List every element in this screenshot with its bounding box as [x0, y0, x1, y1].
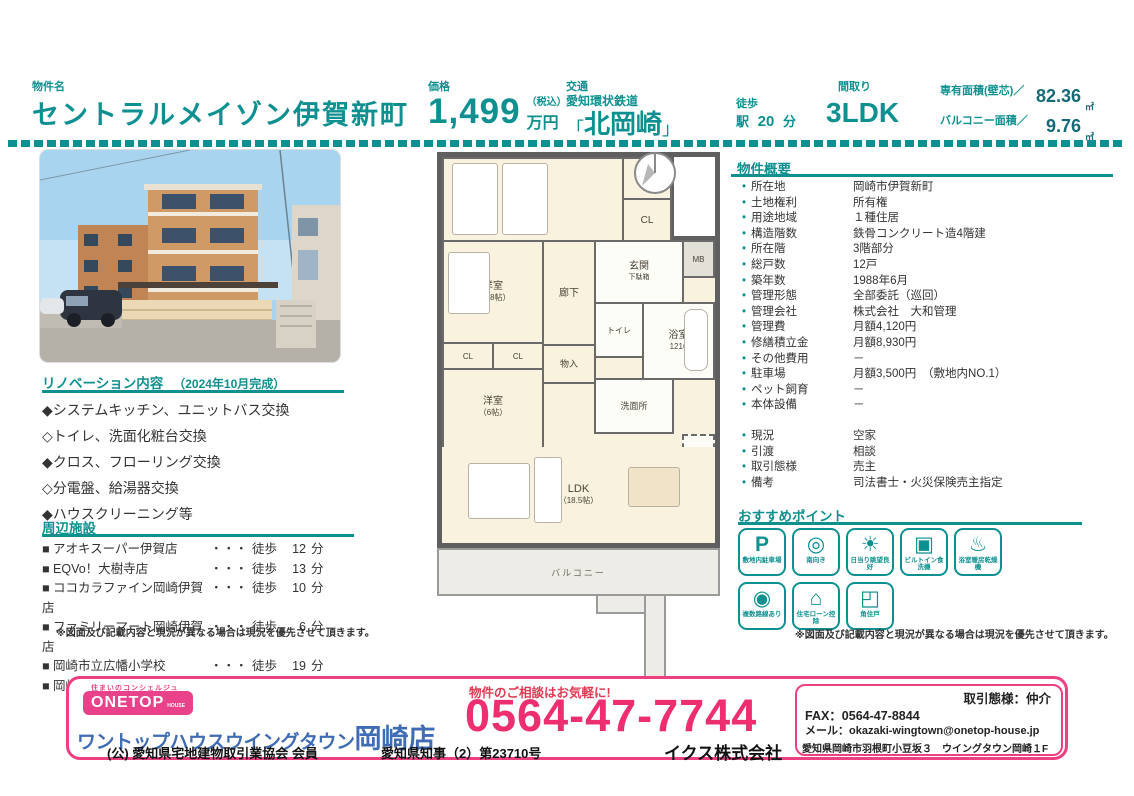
- area-value: 82.36: [1036, 86, 1081, 107]
- train-icon: ◉: [753, 587, 771, 611]
- facility-row: ■ ココカラファイン岡崎伊賀店・・・徒歩10分: [42, 579, 362, 618]
- overview-row: •その他費用－: [737, 352, 1122, 368]
- price-unit: 万円: [527, 109, 567, 133]
- badge-corner-unit: ◰角住戸: [846, 582, 894, 630]
- balcony-area-label: バルコニー面積／: [940, 112, 1028, 128]
- rug-furniture: [468, 463, 530, 519]
- overview-row: •修繕積立金月額8,930円: [737, 336, 1122, 352]
- overview-row: •所在地岡崎市伊賀新町: [737, 180, 1122, 196]
- bath-dryer-icon: ♨: [969, 533, 988, 557]
- building-photo-illustration: [40, 150, 340, 362]
- overview-rule: [731, 174, 1113, 177]
- parking-icon: P: [755, 533, 769, 557]
- facilities-rule: [42, 534, 354, 537]
- overview-row: •築年数1988年6月: [737, 274, 1122, 290]
- balcony: バルコニー: [437, 548, 720, 596]
- overview-row: •所在階3階部分: [737, 242, 1122, 258]
- badge-multiple-lines: ◉複数路線あり: [738, 582, 786, 630]
- bed-furniture: [452, 163, 498, 235]
- email-address: メール：okazaki-wingtown@onetop-house.jp: [805, 722, 1039, 738]
- dining-table-furniture: [628, 467, 680, 507]
- layout-label: 間取り: [838, 78, 871, 94]
- walk-minutes: 20: [758, 113, 775, 130]
- dishwasher-icon: ▣: [914, 533, 934, 557]
- badge-parking: P敷地内駐車場: [738, 528, 786, 576]
- compass-icon: ◎: [807, 533, 825, 557]
- compass-icon: [632, 150, 678, 196]
- entrance: 玄関下駄箱: [594, 240, 684, 304]
- overview-row: •取引態様売主: [737, 460, 1122, 476]
- badge-dishwasher: ▣ビルトイン食洗機: [900, 528, 948, 576]
- renovation-item: ◇トイレ、洗面化粧台交換: [42, 423, 362, 449]
- facility-row: ■ EQVo！大樹寺店・・・徒歩13分: [42, 560, 362, 580]
- layout-value: 3LDK: [826, 97, 899, 129]
- badge-south-facing: ◎南向き: [792, 528, 840, 576]
- overview-row: •管理費月額4,120円: [737, 320, 1122, 336]
- renovation-title: リノベーション内容: [42, 372, 163, 392]
- overview-row: •土地権利所有権: [737, 196, 1122, 212]
- toilet: トイレ: [594, 302, 644, 358]
- contact-box: 取引態様：仲介 FAX：0564-47-8844 メール：okazaki-win…: [795, 684, 1063, 756]
- corner-unit-icon: ◰: [860, 587, 880, 611]
- sun-icon: ☀: [861, 533, 880, 557]
- deal-type: 取引態様：仲介: [963, 688, 1051, 707]
- price-tax-note: （税込）: [527, 96, 567, 109]
- overview-row: •引渡相談: [737, 445, 1122, 461]
- overview-row: •現況空家: [737, 429, 1122, 445]
- station-bracket-close: 」: [662, 115, 680, 141]
- company-name: イクス株式会社: [664, 739, 782, 764]
- phone-number: 0564-47-7744: [465, 694, 757, 738]
- footer: 住まいのコンシェルジュ ONETOP HOUSE ワントップハウスウイングタウン…: [66, 676, 1068, 760]
- overview-row: •用途地域１種住居: [737, 211, 1122, 227]
- property-name: セントラルメイゾン伊賀新町: [32, 93, 409, 132]
- sofa-furniture: [534, 457, 562, 523]
- balcony-area-value: 9.76: [1046, 116, 1081, 137]
- area-label: 専有面積(壁芯)／: [940, 82, 1024, 98]
- overview-row: •構造階数鉄骨コンクリート造4階建: [737, 227, 1122, 243]
- points-disclaimer: ※図面及び記載内容と現況が異なる場合は現況を優先させて頂きます。: [795, 626, 1114, 641]
- onetop-logo: ONETOP HOUSE: [83, 691, 193, 715]
- property-photo: [40, 150, 340, 362]
- storage: 物入: [542, 344, 596, 384]
- closet: CL: [492, 342, 544, 370]
- station-bracket-open: 「: [566, 115, 584, 141]
- renovation-item: ◆システムキッチン、ユニットバス交換: [42, 397, 362, 423]
- bed-furniture: [502, 163, 548, 235]
- property-name-label: 物件名: [32, 78, 65, 94]
- washroom: 洗面所: [594, 378, 674, 434]
- hallway: 廊下: [542, 240, 596, 346]
- facilities-disclaimer: ※図面及び記載内容と現況が異なる場合は現況を優先させて頂きます。: [56, 624, 375, 639]
- price-value: 1,499: [428, 92, 521, 132]
- overview-row: •本体設備－: [737, 398, 1122, 414]
- facility-row: ■ アオキスーパー伊賀店・・・徒歩12分: [42, 540, 362, 560]
- house-loan-icon: ⌂: [810, 587, 823, 611]
- overview-row: •管理形態全部委託（巡回）: [737, 289, 1122, 305]
- minutes-unit: 分: [783, 114, 796, 129]
- office-address: 愛知県岡崎市羽根町小豆坂３ ウイングタウン岡崎１F: [802, 740, 1048, 755]
- overview-row: •ペット飼育－: [737, 383, 1122, 399]
- bathtub: [684, 309, 708, 371]
- license-number: 愛知県知事（2）第23710号: [381, 743, 541, 762]
- station-name: 北岡崎: [584, 104, 662, 141]
- header-divider: [8, 140, 1126, 147]
- facility-row: ■ 岡崎市立広幡小学校・・・徒歩19分: [42, 657, 362, 677]
- bed-furniture: [448, 252, 490, 314]
- station-suffix: 駅: [736, 114, 749, 129]
- renovation-item: ◇分電盤、給湯器交換: [42, 475, 362, 501]
- badge-bath-dryer: ♨浴室暖房乾燥機: [954, 528, 1002, 576]
- area-unit: ㎡: [1085, 100, 1094, 113]
- floorplan: 洋室（7帖） CL CL 洋室（4.8帖） 廊下 玄関下駄箱 MB トイレ 浴室…: [437, 152, 720, 548]
- overview-row: •総戸数12戸: [737, 258, 1122, 274]
- badge-sunny-view: ☀日当り眺望良好: [846, 528, 894, 576]
- walk-label: 徒歩: [736, 95, 758, 111]
- flyer-page: 物件名 セントラルメイゾン伊賀新町 価格 1,499 （税込） 万円 交通 愛知…: [0, 0, 1134, 796]
- meter-box: MB: [682, 240, 715, 278]
- overview-row: •備考司法書士・火災保険売主指定: [737, 476, 1122, 492]
- overview-row: •管理会社株式会社 大和管理: [737, 305, 1122, 321]
- badge-housing-loan: ⌂住宅ローン控除: [792, 582, 840, 630]
- renovation-rule: [42, 390, 344, 393]
- points-rule: [738, 522, 1082, 525]
- closet: CL: [622, 198, 672, 242]
- closet: CL: [442, 342, 494, 370]
- renovation-item: ◆クロス、フローリング交換: [42, 449, 362, 475]
- overview-row: •駐車場月額3,500円 （敷地内NO.1）: [737, 367, 1122, 383]
- association-member: (公) 愛知県宅地建物取引業協会 会員: [107, 743, 318, 762]
